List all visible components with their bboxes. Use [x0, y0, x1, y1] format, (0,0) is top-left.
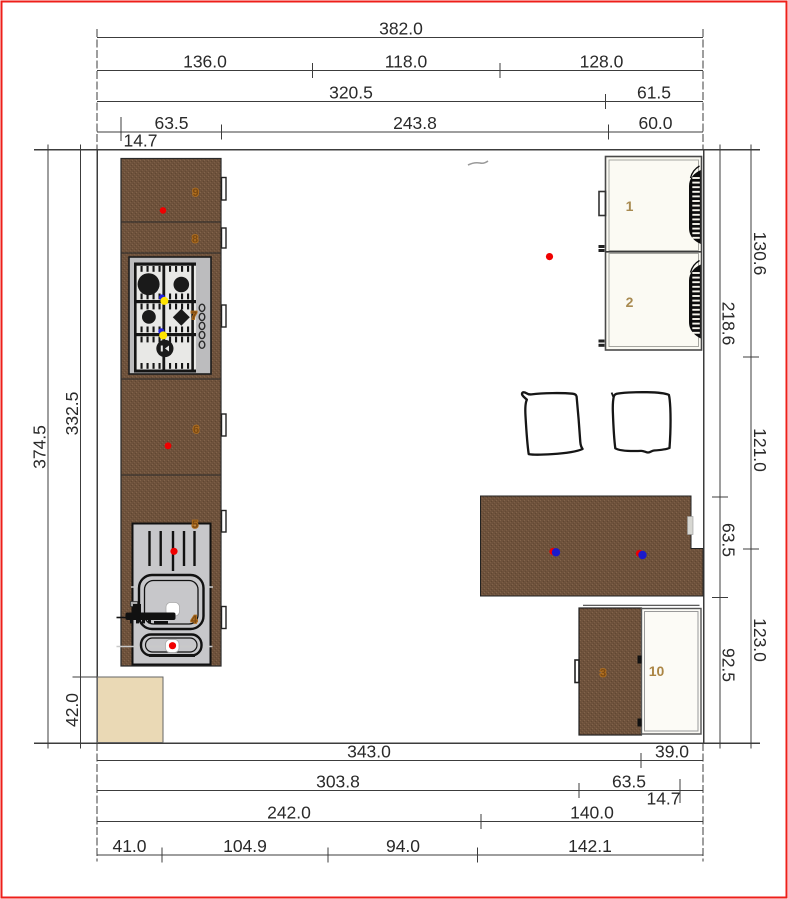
svg-text:130.6: 130.6 [750, 232, 770, 276]
svg-text:7: 7 [191, 310, 197, 322]
svg-text:10: 10 [649, 663, 665, 679]
svg-text:42.0: 42.0 [62, 693, 82, 727]
svg-text:9: 9 [192, 187, 198, 199]
svg-text:39.0: 39.0 [655, 742, 689, 762]
svg-text:41.0: 41.0 [112, 836, 146, 856]
svg-text:14.7: 14.7 [646, 789, 680, 809]
svg-text:3: 3 [600, 668, 606, 680]
svg-text:303.8: 303.8 [316, 772, 360, 792]
svg-text:14.7: 14.7 [123, 131, 157, 151]
svg-text:60.0: 60.0 [638, 113, 672, 133]
svg-text:63.5: 63.5 [154, 113, 188, 133]
svg-text:242.0: 242.0 [267, 803, 311, 823]
svg-text:382.0: 382.0 [379, 19, 423, 39]
svg-text:140.0: 140.0 [570, 803, 614, 823]
svg-text:343.0: 343.0 [347, 742, 391, 762]
svg-text:63.5: 63.5 [719, 523, 739, 557]
svg-text:104.9: 104.9 [223, 836, 267, 856]
svg-text:142.1: 142.1 [568, 836, 612, 856]
svg-text:243.8: 243.8 [393, 113, 437, 133]
svg-text:128.0: 128.0 [580, 52, 624, 72]
svg-text:2: 2 [626, 294, 634, 310]
svg-text:1: 1 [626, 198, 634, 214]
svg-text:6: 6 [193, 424, 199, 436]
svg-text:63.5: 63.5 [612, 772, 646, 792]
svg-text:118.0: 118.0 [385, 52, 428, 72]
svg-text:4: 4 [191, 614, 198, 626]
svg-text:332.5: 332.5 [62, 392, 82, 436]
svg-text:123.0: 123.0 [750, 618, 770, 662]
svg-text:374.5: 374.5 [30, 425, 50, 469]
svg-text:94.0: 94.0 [386, 836, 420, 856]
svg-text:121.0: 121.0 [750, 428, 770, 472]
svg-text:218.6: 218.6 [719, 302, 739, 346]
svg-text:5: 5 [192, 519, 198, 531]
svg-text:136.0: 136.0 [183, 52, 227, 72]
svg-text:8: 8 [192, 234, 198, 246]
svg-text:61.5: 61.5 [637, 83, 671, 103]
svg-text:92.5: 92.5 [719, 648, 739, 682]
svg-text:320.5: 320.5 [329, 83, 373, 103]
